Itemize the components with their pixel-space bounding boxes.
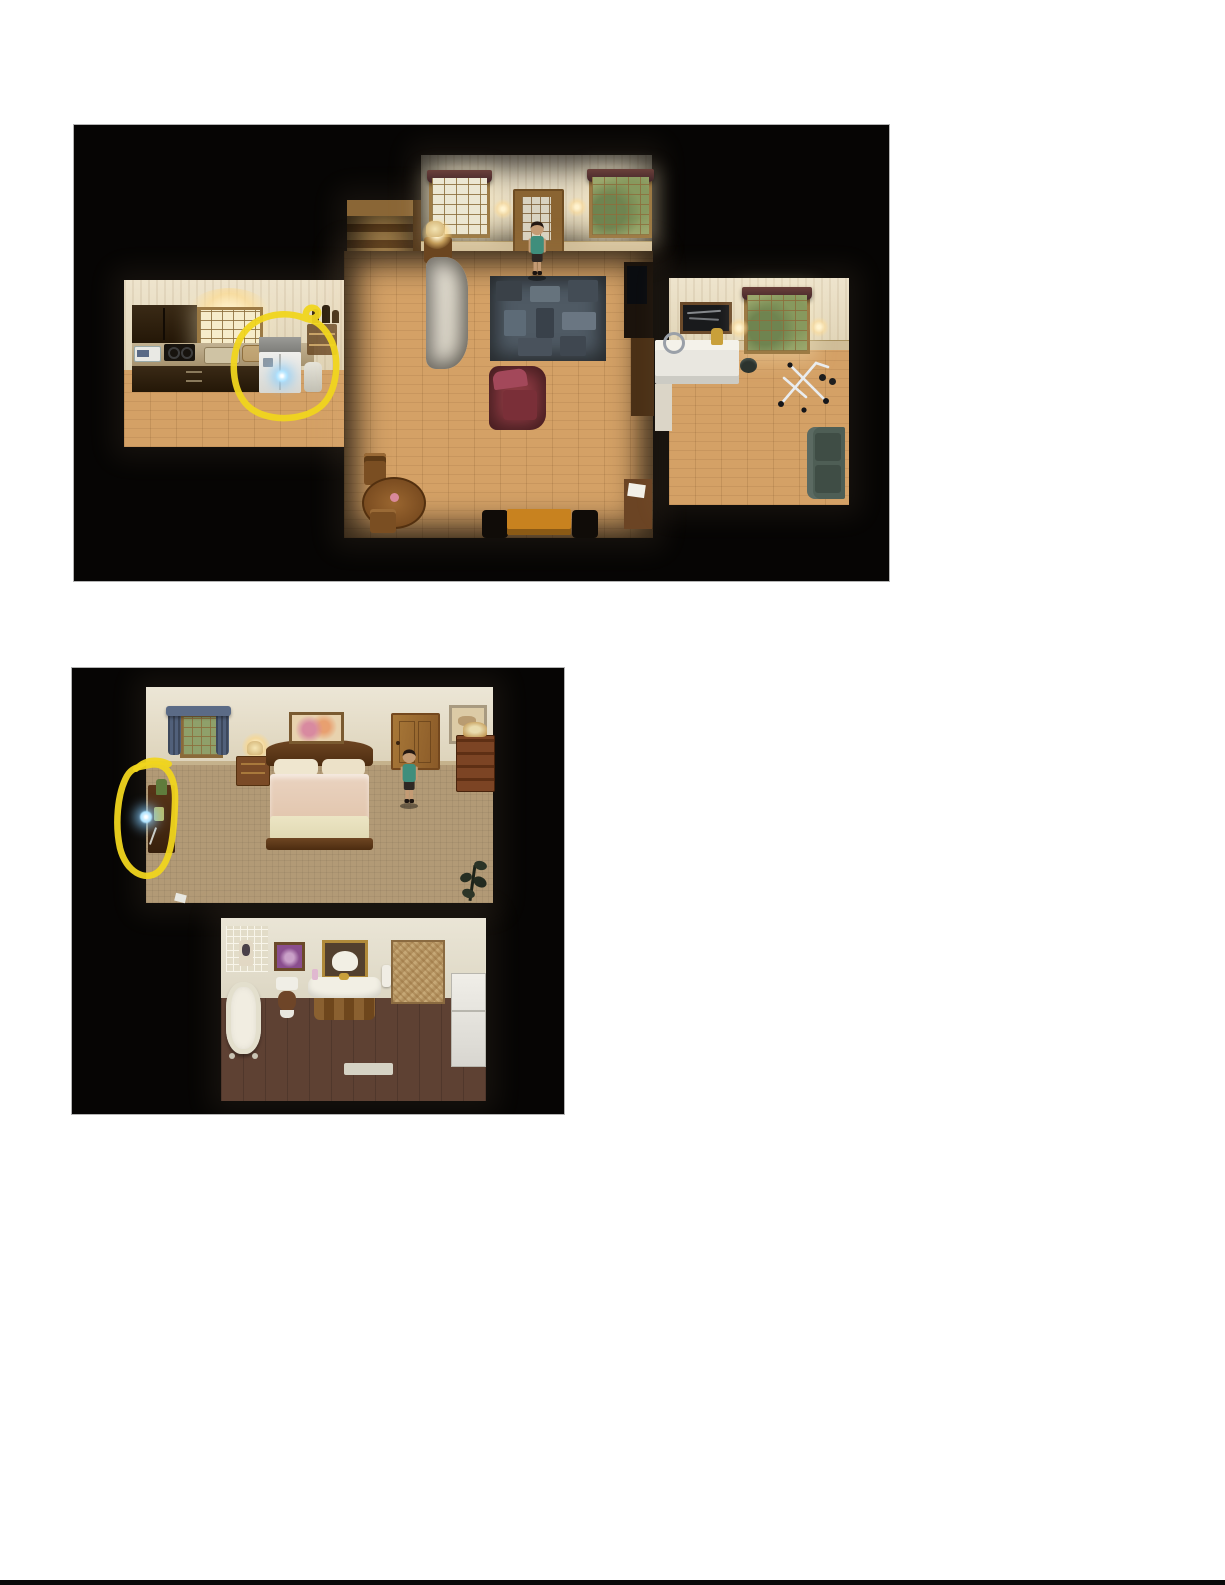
refrigerator-top-cabinet <box>259 337 301 352</box>
wall-sconce <box>493 199 513 219</box>
wall-shelf-unit <box>307 324 337 355</box>
page: { "page": { "background": "#ffffff", "im… <box>0 0 1225 1585</box>
drawer-handle <box>186 371 202 373</box>
area-rug <box>490 276 606 361</box>
nightstand <box>236 756 270 786</box>
trash-can <box>304 362 322 392</box>
dresser-lamp <box>463 722 487 737</box>
hand-towel <box>382 965 391 987</box>
jug-decor <box>711 328 723 345</box>
bath-mat <box>344 1063 393 1075</box>
potted-plant <box>458 855 489 903</box>
rug-patch <box>560 336 586 356</box>
screenshot-first-floor <box>73 124 890 582</box>
clawfoot-bathtub <box>226 982 261 1054</box>
dumbbell <box>819 374 826 381</box>
tv-screen <box>627 266 647 304</box>
dining-chair <box>370 509 396 533</box>
toilet <box>276 977 298 1019</box>
curtain-left <box>168 710 181 755</box>
microwave <box>134 346 161 362</box>
cabinet-divider <box>452 1010 485 1012</box>
drawer-handle <box>241 763 265 765</box>
red-armchair <box>489 366 546 430</box>
burner <box>168 347 180 359</box>
small-poster <box>239 940 253 966</box>
white-pillar <box>655 384 672 431</box>
hall-window-right-panes <box>592 177 649 235</box>
hall-window-right <box>589 174 652 238</box>
nightstand-lamp <box>247 741 263 755</box>
refrigerator-dispenser <box>263 358 273 367</box>
exercise-machine <box>774 356 836 414</box>
round-bin <box>740 358 757 373</box>
white-sofa <box>426 257 468 369</box>
plant-leaf <box>461 887 476 900</box>
vanity-sink <box>308 977 381 1021</box>
cabinet-divider <box>163 308 165 340</box>
screenshot-second-floor <box>71 667 565 1115</box>
toilet-lid <box>278 991 296 1011</box>
wall-sconce <box>809 317 829 337</box>
chalk-squiggle <box>689 317 719 321</box>
wall-sconce <box>729 318 749 338</box>
curtain-right <box>216 710 229 755</box>
workout-room <box>669 278 849 505</box>
interact-sparkle-shelf[interactable] <box>140 811 152 823</box>
bathroom <box>221 918 486 1101</box>
rug-patch <box>562 312 596 330</box>
rug-patch <box>536 308 554 338</box>
bathroom-door <box>391 940 445 1004</box>
blanket-upper <box>270 774 369 820</box>
faucet <box>339 973 349 980</box>
bedroom-window <box>168 708 229 757</box>
toilet-tank <box>276 977 298 990</box>
paper-on-desk <box>627 483 646 498</box>
kitchen-upper-cabinets <box>132 305 197 343</box>
drawer-handle <box>241 772 265 774</box>
blanket-lower <box>270 816 369 840</box>
armchair-seat <box>503 390 537 420</box>
bedroom <box>146 687 493 903</box>
armchair-back <box>492 368 528 391</box>
rug-patch <box>496 281 522 301</box>
toilet-base <box>280 1010 294 1018</box>
chalk-squiggle <box>687 310 721 314</box>
table-lamp <box>426 221 444 237</box>
curtain-valance <box>166 706 231 716</box>
rug-patch <box>568 280 598 302</box>
purple-picture <box>274 942 305 971</box>
microwave-door <box>137 350 149 357</box>
dark-armchair-silhouette <box>572 510 598 538</box>
shower-cabinet <box>451 973 486 1067</box>
footboard <box>266 838 373 850</box>
tv-unit <box>624 262 653 338</box>
chalkboard-art <box>680 302 732 334</box>
dresser <box>456 735 495 792</box>
shelf-paper <box>149 827 157 845</box>
dark-armchair-silhouette <box>482 510 508 538</box>
flower-painting <box>289 712 344 744</box>
white-console-table <box>655 340 739 384</box>
kitchen-lower-cabinets <box>132 366 259 392</box>
poster-figure <box>242 944 250 956</box>
media-shelf <box>631 338 654 416</box>
refrigerator[interactable] <box>259 337 301 393</box>
wheel-decor <box>663 332 685 354</box>
stair-landing <box>347 200 413 216</box>
wall-sconce <box>567 197 587 217</box>
drawer-handle <box>186 380 202 382</box>
page-bottom-bar <box>0 1580 1225 1585</box>
shelf <box>309 344 335 346</box>
mirror-glass <box>332 951 358 971</box>
green-item-on-shelf <box>156 779 167 795</box>
burner <box>181 347 193 359</box>
bottle <box>332 310 339 323</box>
workout-window-panes <box>747 295 807 351</box>
dumbbell <box>829 378 836 385</box>
vanity-base <box>314 998 375 1020</box>
counter-bottles <box>310 305 340 323</box>
kitchen-room <box>124 280 346 447</box>
document-page <box>0 0 1225 1585</box>
kitchen-sink <box>204 347 240 364</box>
bed <box>266 740 373 850</box>
tub-foot <box>252 1053 258 1059</box>
workout-window <box>744 292 810 354</box>
cake-plate <box>390 493 399 502</box>
couch-cushion <box>815 433 841 461</box>
boy-character <box>525 217 549 281</box>
bottle <box>322 305 330 323</box>
rug-patch <box>504 310 526 336</box>
rug-patch <box>518 338 552 356</box>
small-desk <box>624 479 652 529</box>
interact-sparkle-fridge[interactable] <box>276 370 288 382</box>
bottle <box>312 309 319 323</box>
coffee-table-orange <box>507 509 571 535</box>
couch-cushion <box>815 465 841 493</box>
plant-leaf <box>471 874 488 890</box>
tub-foot <box>229 1053 235 1059</box>
shelf <box>309 333 335 335</box>
toiletry-bottle <box>312 969 318 980</box>
stove <box>164 344 195 361</box>
rug-patch <box>530 286 560 302</box>
green-couch <box>807 427 845 499</box>
boy-character <box>397 745 421 809</box>
corner-shelf[interactable] <box>148 785 175 853</box>
shelf-book <box>154 807 164 821</box>
